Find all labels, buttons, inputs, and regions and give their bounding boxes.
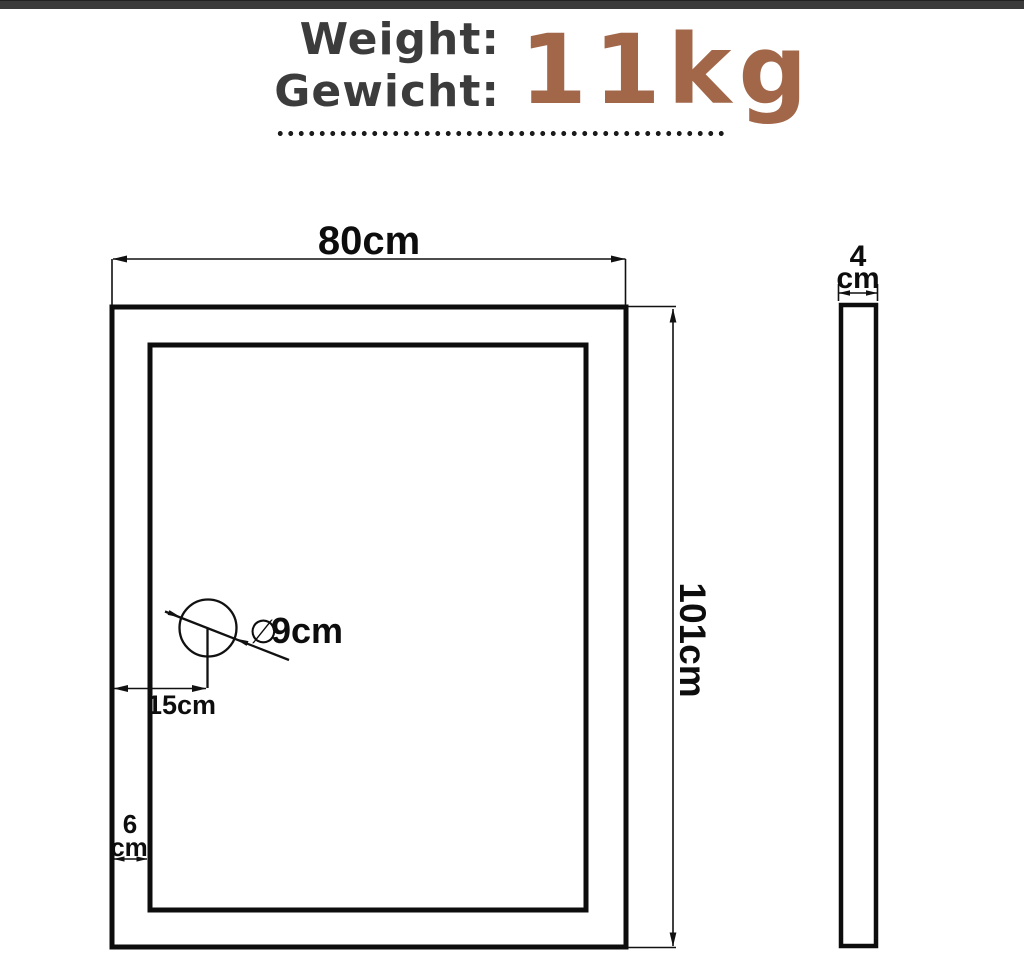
arrow-down-icon [670,933,677,947]
front-view-outer-rect [112,307,626,947]
arrow-icon [235,638,249,646]
thickness-dimension: 4 cm [836,240,879,301]
arrow-icon [168,610,182,618]
frame-width-unit-label: cm [110,832,148,862]
width-dimension-label: 80cm [318,219,420,263]
thickness-unit-label: cm [836,262,879,295]
frame-width-dimension: 6 cm [110,809,148,862]
drain-hole: ∅ 9cm [165,600,343,661]
front-view-inner-rect [150,345,586,910]
arrow-left-icon [113,256,128,263]
diameter-value-label: 9cm [271,610,343,651]
height-dimension: 101cm [628,307,713,948]
side-view-rect [841,305,876,946]
technical-drawing: 80cm 101cm 4 cm 6 cm ∅ 9cm 15cm [0,0,1024,954]
drain-offset-label: 15cm [147,690,216,720]
arrow-left-icon [114,685,129,692]
arrow-right-icon [611,256,626,263]
drain-offset-dimension: 15cm [114,629,217,720]
width-dimension: 80cm [112,219,626,305]
arrow-up-icon [670,309,677,323]
height-dimension-label: 101cm [672,582,713,697]
